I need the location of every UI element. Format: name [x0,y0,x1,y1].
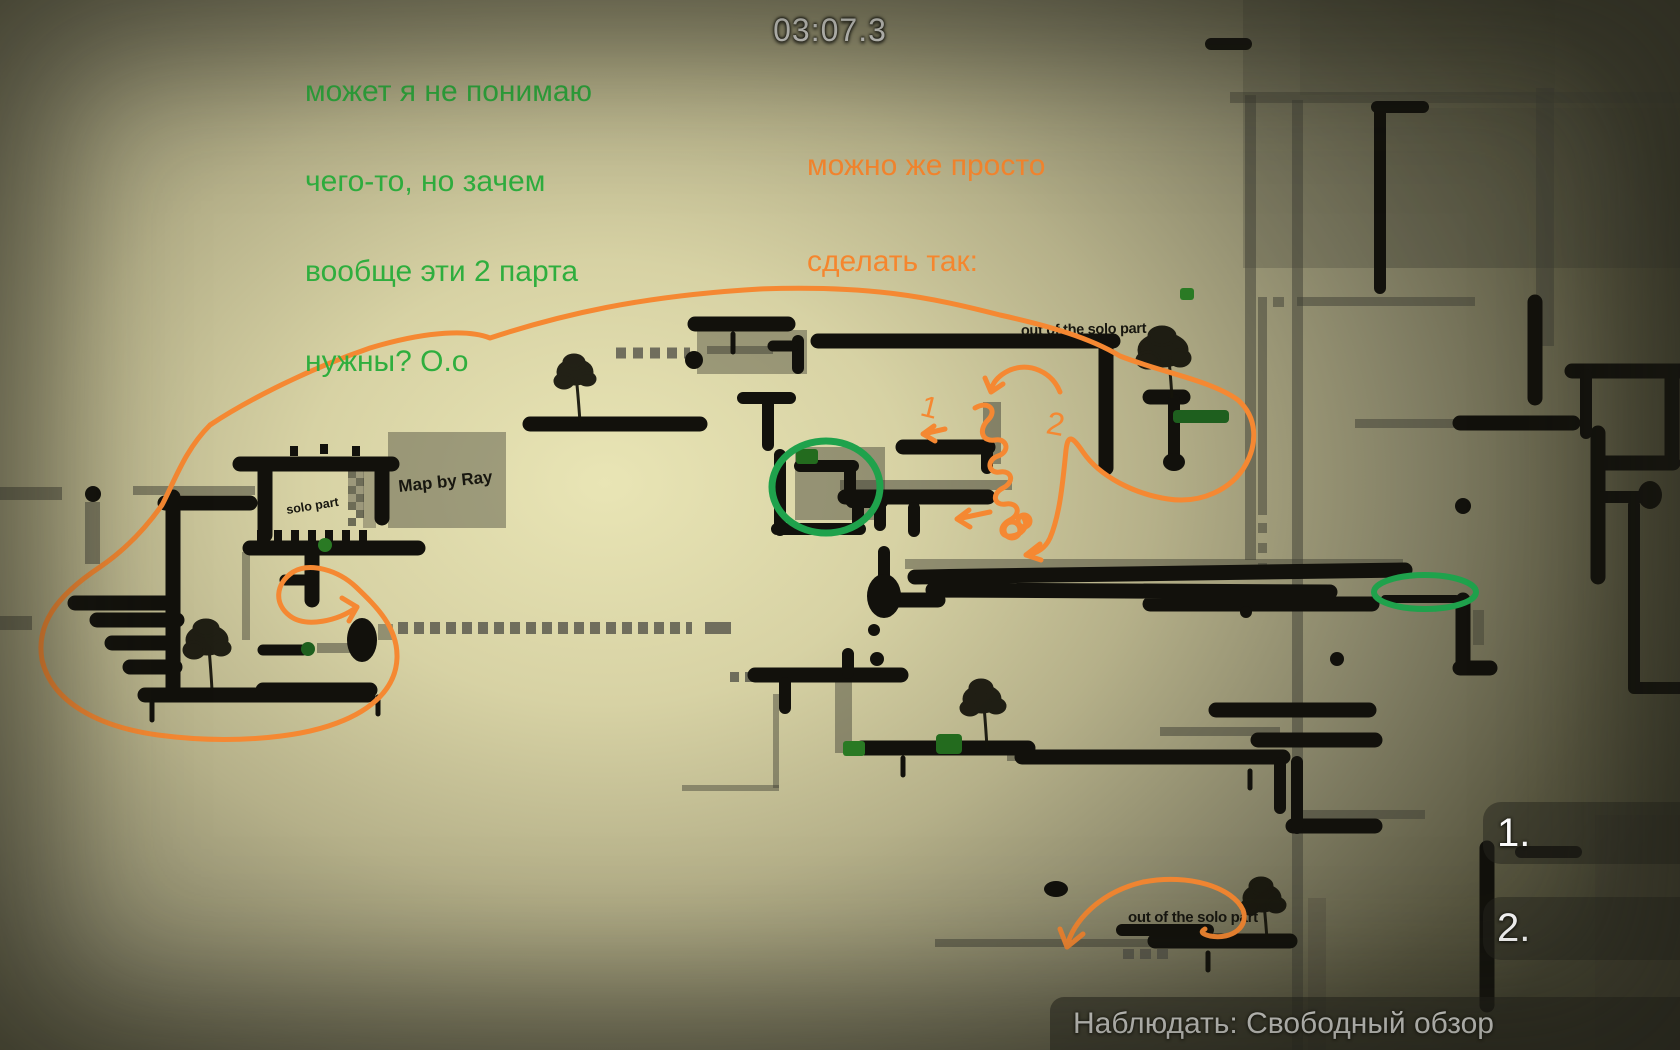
dashed-rows [398,353,1168,954]
checker-strip [348,470,364,526]
annotation-number-2: 2 [1044,404,1068,443]
game-viewport: out of the solo part out of the solo par… [0,0,1680,1050]
annotation-left-arrow-1 [923,426,945,441]
green-comment-line: может я не понимаю [305,69,592,114]
orange-comment: можно же просто сделать так: [807,94,1045,334]
label-out-of-solo-bottom: out of the solo part [1128,909,1258,926]
green-comment: может я не понимаю чего-то, но зачем воо… [305,24,592,429]
green-comment-line: вообще эти 2 парта [305,249,592,294]
tree-icon [184,620,230,690]
green-comment-line: нужны? O.o [305,339,592,384]
green-comment-line: чего-то, но зачем [305,159,592,204]
spectator-slot-2[interactable]: 2. [1483,897,1680,960]
annotation-big-loop [41,288,1254,739]
annotation-arc-down-arrow [985,367,1060,392]
terrain-details [85,351,1662,897]
label-solo-part: solo part [285,495,340,517]
orange-comment-line: можно же просто [807,142,1045,190]
spectator-slot-1[interactable]: 1. [1483,802,1680,864]
annotation-number-1: 1 [917,390,941,426]
spectate-mode-bar[interactable]: Наблюдать: Свободный обзор [1050,997,1680,1050]
green-circle-right [1374,575,1476,609]
tree-icon [961,680,1005,748]
dash-wide [705,622,731,634]
race-timer: 03:07.3 [740,12,920,49]
annotation-left-arrow-2 [957,510,990,527]
spectate-mode-label: Наблюдать: Свободный обзор [1050,997,1680,1050]
orange-comment-line: сделать так: [807,238,1045,286]
annotation-drawings [41,288,1254,947]
